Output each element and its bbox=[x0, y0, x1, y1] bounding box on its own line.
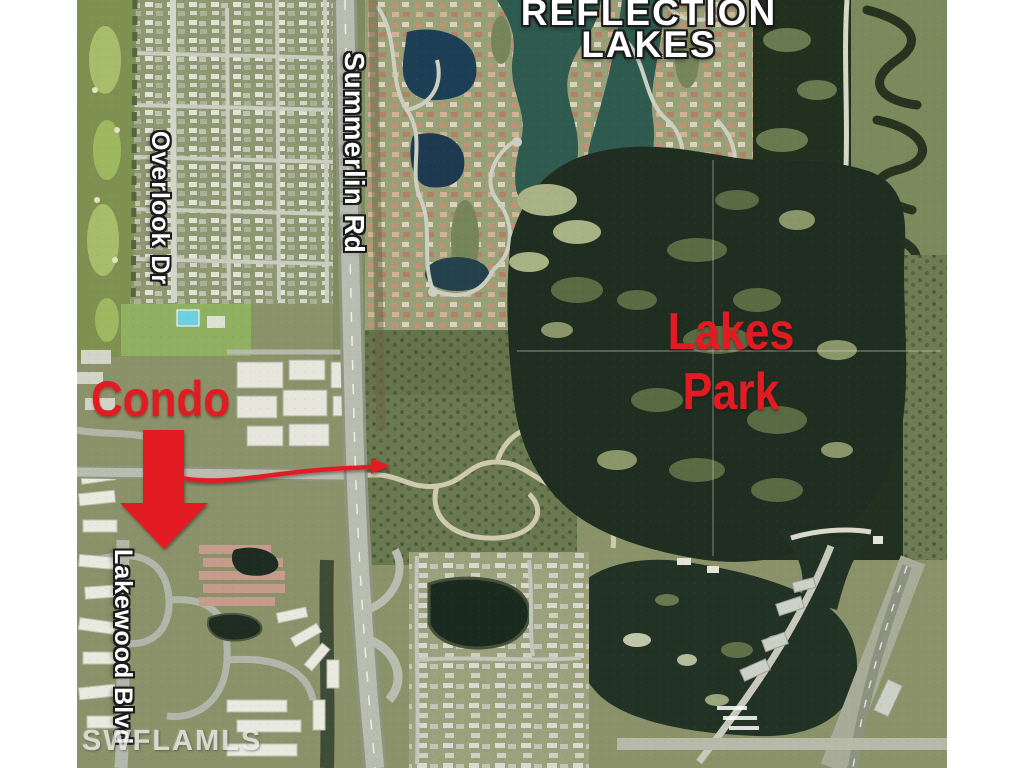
street-label-lakewood-blvd: Lakewood Blvd bbox=[108, 549, 137, 745]
community-label-reflection-lakes: REFLECTION LAKES bbox=[449, 0, 849, 61]
annotation-condo-label: Condo bbox=[91, 370, 230, 428]
listing-photo-page: REFLECTION LAKES Summerlin Rd Overlook D… bbox=[0, 0, 1024, 768]
lakes-park-line2: Park bbox=[649, 362, 812, 422]
annotation-lakes-park-label: Lakes Park bbox=[649, 302, 812, 422]
aerial-photo: REFLECTION LAKES Summerlin Rd Overlook D… bbox=[77, 0, 947, 768]
mls-watermark: SWFLAMLS bbox=[82, 725, 262, 758]
lakes-park-line1: Lakes bbox=[649, 302, 812, 362]
street-label-summerlin-rd: Summerlin Rd bbox=[338, 52, 370, 254]
community-label-line2: LAKES bbox=[449, 29, 849, 61]
street-label-overlook-dr: Overlook Dr bbox=[145, 131, 174, 285]
